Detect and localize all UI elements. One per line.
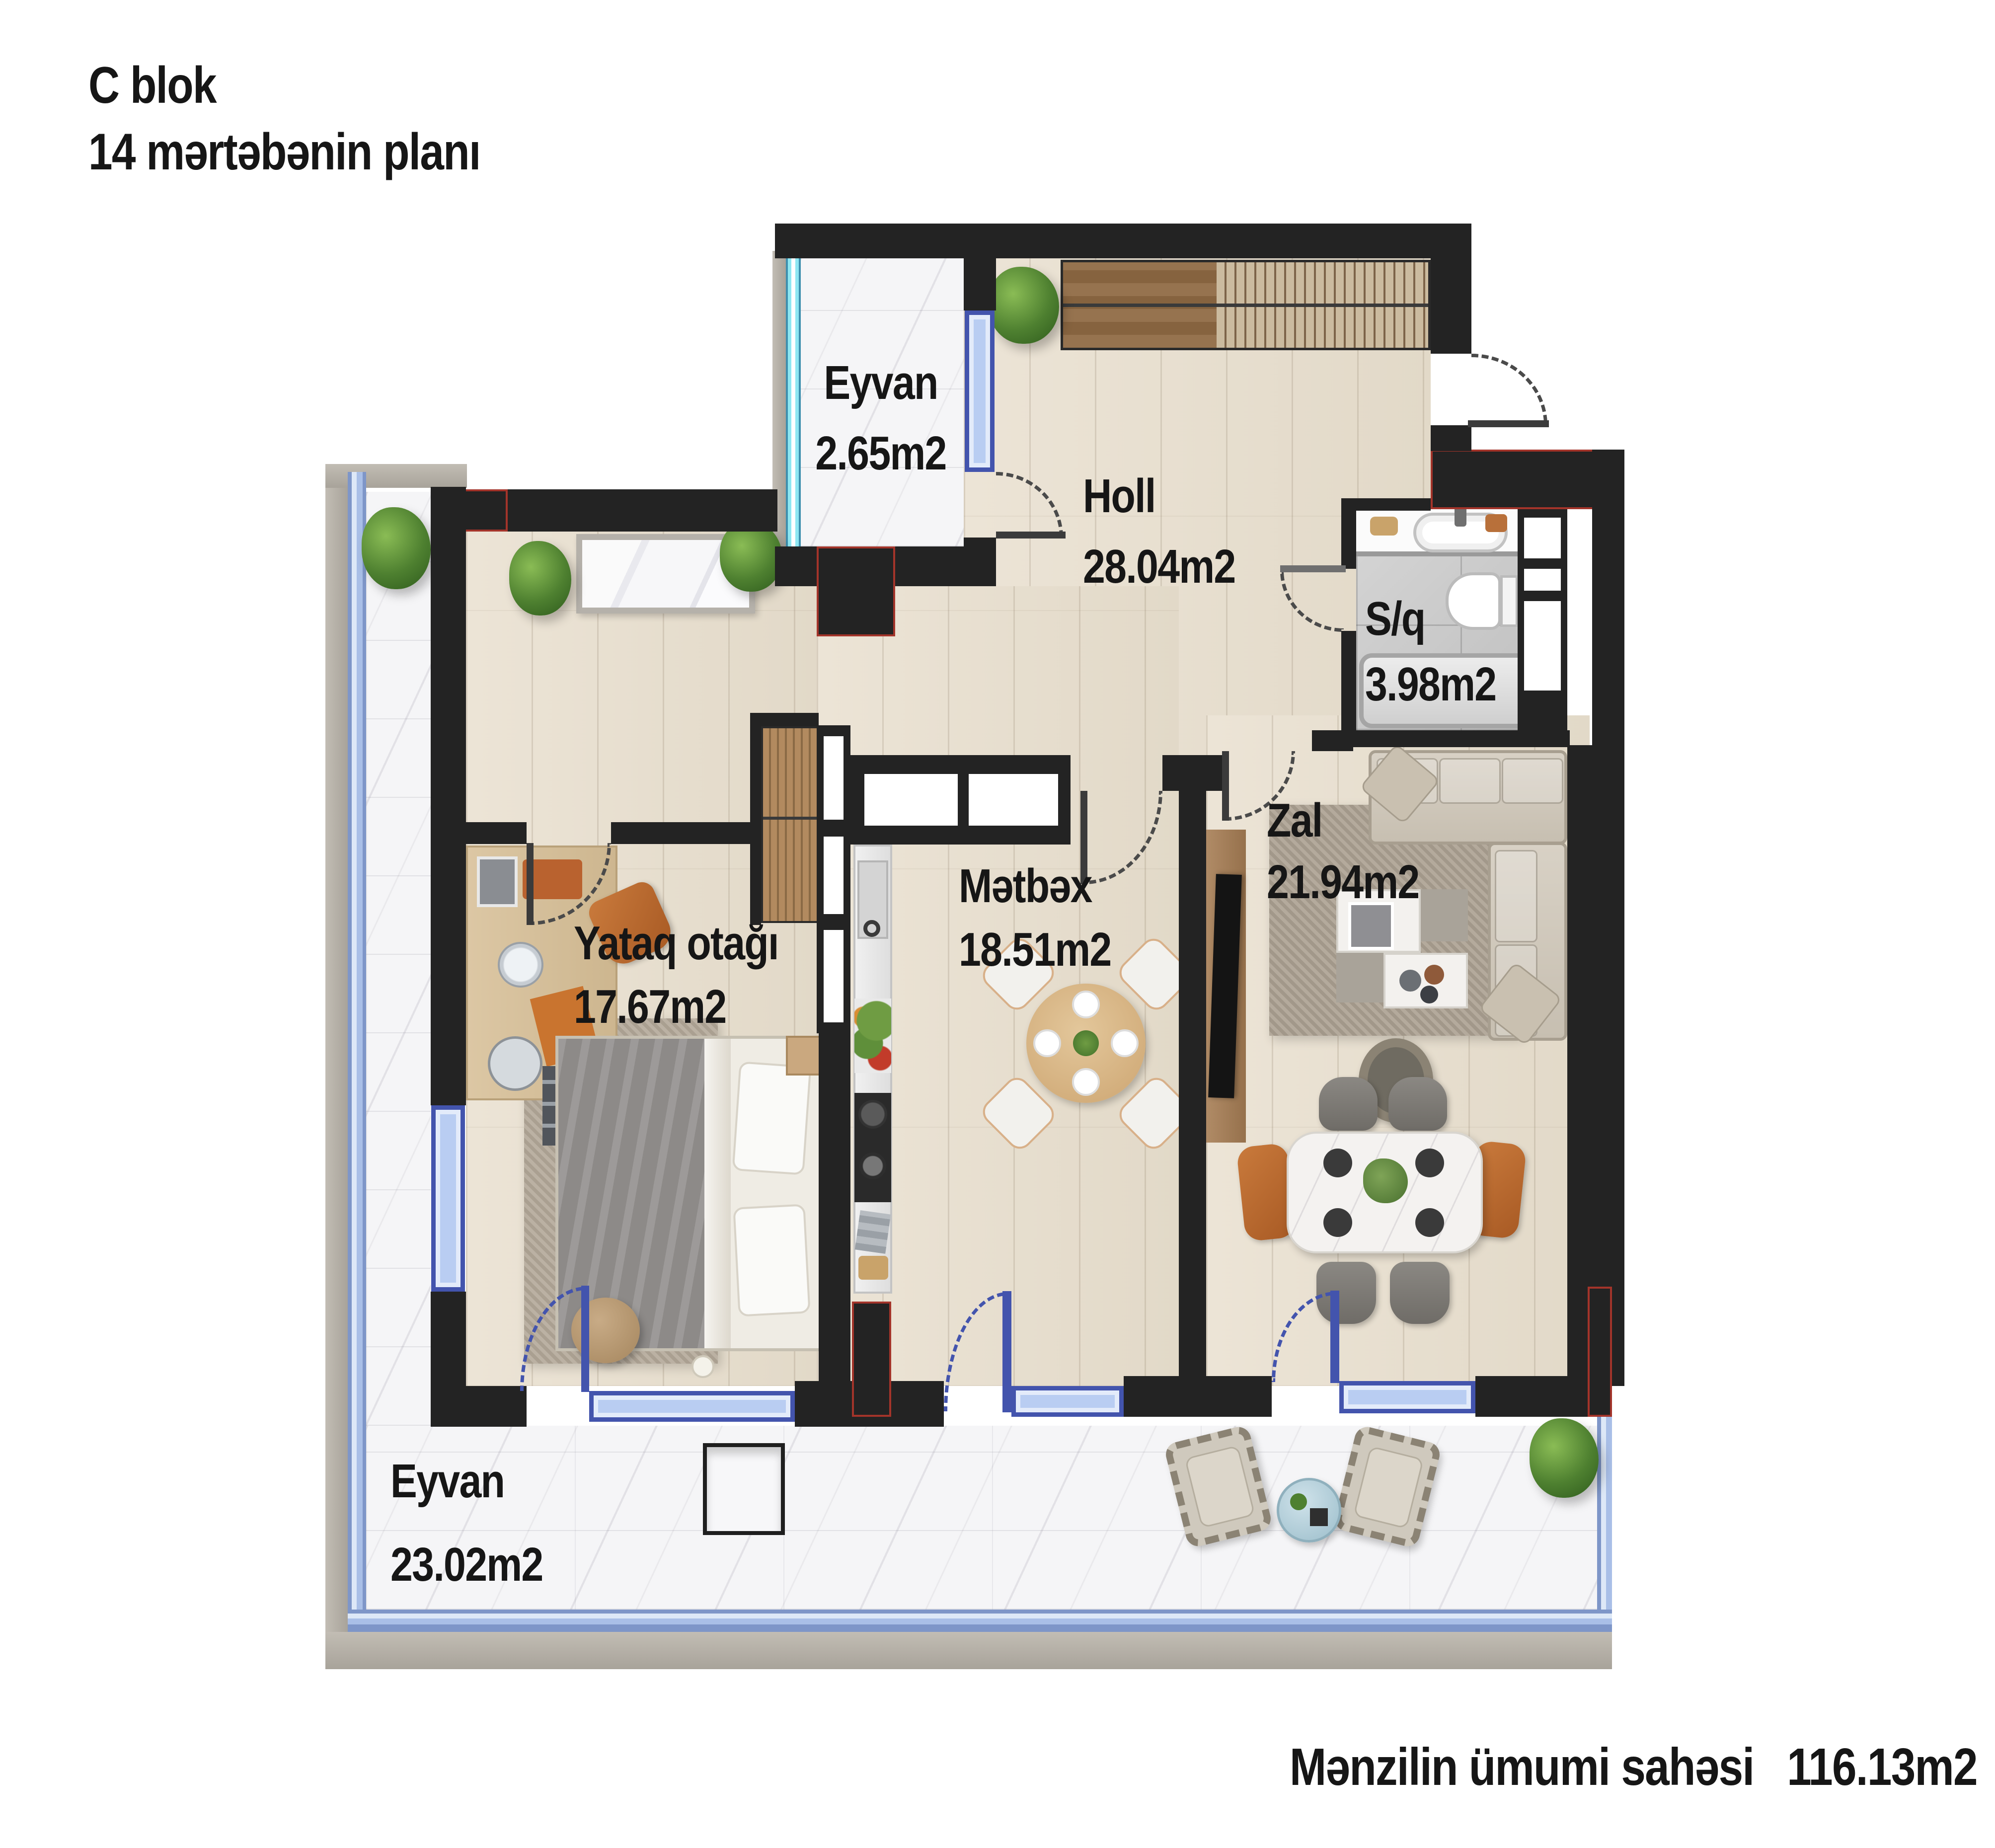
coffee-table-cup-1 xyxy=(1399,970,1421,992)
partition-pane-h1 xyxy=(864,774,958,826)
window-kitchen-balcony xyxy=(1011,1386,1124,1417)
building-edge-top-left xyxy=(325,464,467,488)
side-table-plant xyxy=(1290,1493,1307,1510)
partition-pane-v3 xyxy=(824,930,844,1022)
wall-left-upper xyxy=(431,487,466,1105)
bathroom-faucet xyxy=(1455,507,1466,527)
room-area: 18.51m2 xyxy=(959,918,1111,982)
entry-door-arc xyxy=(1471,354,1547,425)
balcony-side-table xyxy=(1277,1478,1341,1542)
room-label-metbex: Mətbəx 18.51m2 xyxy=(959,854,1111,982)
wall-bedroom-top-right xyxy=(611,822,750,844)
room-label-holl: Holl 28.04m2 xyxy=(1083,461,1235,602)
room-label-eyvan-bottom: Eyvan 23.02m2 xyxy=(390,1440,543,1607)
room-name: Eyvan xyxy=(812,348,949,418)
bedroom-balcony-door-panel xyxy=(581,1286,589,1392)
window-bedroom-balcony xyxy=(589,1391,795,1422)
room-label-sq: S/q 3.98m2 xyxy=(1365,586,1496,717)
wall-bathroom-bottom xyxy=(1353,730,1570,747)
kitchen-stove xyxy=(854,1093,891,1202)
plant-holl-top xyxy=(989,267,1059,344)
zal-dining-chair-top-2 xyxy=(1388,1077,1447,1131)
coffee-table-cup-2 xyxy=(1424,965,1444,985)
window-zal-balcony xyxy=(1339,1381,1475,1413)
bathroom-cosmetics xyxy=(1485,514,1507,532)
desk-lamp xyxy=(498,942,543,988)
wall-block-red-2 xyxy=(852,1302,891,1417)
room-name: Mətbəx xyxy=(959,854,1111,918)
wall-bottom-kitchen-right xyxy=(1124,1376,1272,1417)
wardrobe-rail-bar xyxy=(1063,304,1428,307)
wall-top xyxy=(775,224,1471,258)
wall-kitchen-zal-divider xyxy=(1179,755,1206,1386)
kitchen-towel xyxy=(855,1210,891,1254)
room-area: 3.98m2 xyxy=(1365,652,1496,717)
window-bedroom-left xyxy=(431,1105,465,1292)
wall-bedroom-top-left xyxy=(466,822,527,844)
bathroom-soap-dish xyxy=(1370,517,1398,536)
dining-plate-4 xyxy=(1415,1208,1444,1237)
stove-pan xyxy=(859,1153,886,1179)
mullion-pane-2 xyxy=(1524,569,1561,591)
wall-bedroom-kitchen-lower xyxy=(819,1033,850,1386)
bed-pillow-2 xyxy=(733,1204,810,1317)
wall-corner-red xyxy=(1588,1287,1612,1417)
wall-bathroom-left-upper xyxy=(1341,509,1356,569)
partition-pane-v1 xyxy=(824,736,844,820)
room-name: Holl xyxy=(1083,461,1235,532)
desk-photo-frame xyxy=(477,856,518,907)
bedroom-wardrobe-rails xyxy=(763,728,817,921)
sofa-cushion xyxy=(1439,758,1501,804)
wall-bottom-zal-right xyxy=(1475,1376,1592,1417)
total-area-value: 116.13m2 xyxy=(1787,1738,1977,1796)
plant-holl-right xyxy=(720,521,782,592)
window-balcony-holl xyxy=(965,310,995,472)
partition-pane-h2 xyxy=(969,774,1058,826)
kitchen-cutting-board xyxy=(858,1256,888,1280)
bedroom-nightstand xyxy=(786,1036,821,1076)
zal-dining-table xyxy=(1287,1132,1483,1253)
closet-nook-wall-left xyxy=(750,713,761,925)
balcony-top-window xyxy=(786,258,801,546)
kitchen-balcony-door-panel xyxy=(1002,1291,1011,1412)
room-area: 28.04m2 xyxy=(1083,532,1235,602)
sofa-cushion xyxy=(1502,758,1563,804)
plant-holl-left xyxy=(509,541,571,616)
building-edge-left xyxy=(325,464,348,1669)
dining-flowers xyxy=(1363,1158,1408,1203)
balcony-glass-rail-bottom xyxy=(348,1610,1612,1632)
bed-sheet-fold xyxy=(704,1039,731,1348)
room-label-yataq: Yataq otağı 17.67m2 xyxy=(574,912,778,1039)
zal-door-panel xyxy=(1222,751,1229,821)
wall-block-red-1 xyxy=(817,546,895,636)
plant-balcony-corner xyxy=(362,507,431,589)
wall-balcony-divider-upper xyxy=(964,258,996,310)
room-label-zal: Zal 21.94m2 xyxy=(1267,790,1419,913)
table-plate-e xyxy=(1111,1029,1139,1057)
side-table-tray xyxy=(1310,1508,1328,1526)
table-plate-n xyxy=(1072,991,1100,1018)
coffee-table-white-2 xyxy=(1383,953,1468,1008)
building-edge-bottom xyxy=(325,1632,1612,1669)
room-name: Yataq otağı xyxy=(574,912,778,975)
coffee-table-gray-1 xyxy=(1421,889,1468,941)
wall-entry-lower xyxy=(1431,425,1471,451)
bedroom-wardrobe-bar xyxy=(763,817,817,820)
table-plate-w xyxy=(1033,1029,1061,1057)
holl-wardrobe xyxy=(1061,260,1431,350)
wall-bathroom-left-lower xyxy=(1341,631,1356,731)
balcony-left-floor xyxy=(366,492,431,1426)
bed-pillow-1 xyxy=(732,1061,811,1175)
balcony-top-door-panel xyxy=(996,532,1066,539)
floor-plan-canvas: C blok 14 mərtəbənin planı Eyvan 2.65m2 … xyxy=(0,0,1995,1848)
room-area: 23.02m2 xyxy=(390,1523,543,1607)
wall-bottom-bedroom-left xyxy=(431,1386,527,1427)
room-area: 17.67m2 xyxy=(574,975,778,1039)
wall-balcony-divider-lower xyxy=(964,538,996,586)
wall-zal-top-stub xyxy=(1312,730,1353,751)
kitchen-table xyxy=(1026,984,1146,1103)
mullion-pane-3 xyxy=(1524,601,1561,691)
bedroom-door-panel xyxy=(527,843,534,925)
desk-mirror xyxy=(488,1036,542,1091)
dining-plate-1 xyxy=(1323,1149,1352,1177)
wall-outer-column-right xyxy=(1592,450,1624,745)
room-area: 2.65m2 xyxy=(812,418,949,489)
total-area-text: Mənzilin ümumi sahəsi 116.13m2 xyxy=(1290,1735,1957,1799)
entry-door-panel xyxy=(1468,420,1549,427)
bedroom-candle xyxy=(691,1355,714,1378)
sofa-cushion xyxy=(1495,850,1537,942)
wall-entry-upper xyxy=(1431,258,1471,354)
balcony-floor-hatch xyxy=(703,1443,785,1535)
toilet-tank xyxy=(1500,575,1518,627)
plan-title: C blok 14 mərtəbənin planı xyxy=(88,52,480,185)
plant-balcony-bottom-right xyxy=(1530,1418,1599,1498)
zal-balcony-door-panel xyxy=(1330,1291,1339,1383)
partition-pane-v2 xyxy=(824,837,844,914)
kitchen-vegetables xyxy=(854,999,891,1073)
zal-dining-chair-top-1 xyxy=(1319,1077,1378,1131)
total-area-label: Mənzilin ümumi sahəsi xyxy=(1290,1738,1754,1796)
room-name: Zal xyxy=(1267,790,1419,851)
dining-plate-2 xyxy=(1415,1149,1444,1177)
room-area: 21.94m2 xyxy=(1267,851,1419,913)
dining-plate-3 xyxy=(1323,1208,1352,1237)
mullion-pane-1 xyxy=(1524,518,1561,558)
title-block: C blok xyxy=(88,52,480,119)
kitchen-faucet xyxy=(863,920,880,937)
wall-bathroom-top-thin xyxy=(1341,498,1431,511)
wall-bathroom-top-block xyxy=(1431,450,1595,509)
room-name: S/q xyxy=(1365,586,1496,652)
armchair-cushion xyxy=(1353,1446,1424,1529)
bathroom-door-panel xyxy=(1280,565,1346,572)
armchair-cushion xyxy=(1184,1445,1255,1528)
stove-pot xyxy=(858,1100,887,1129)
table-centerpiece xyxy=(1073,1030,1099,1056)
room-name: Eyvan xyxy=(390,1440,543,1523)
room-label-eyvan-top: Eyvan 2.65m2 xyxy=(812,348,949,489)
title-floor: 14 mərtəbənin planı xyxy=(88,119,480,185)
bedroom-wardrobe xyxy=(761,726,819,923)
zal-dining-chair-bottom-2 xyxy=(1390,1262,1450,1324)
balcony-glass-rail-left xyxy=(348,472,366,1632)
table-plate-s xyxy=(1072,1068,1100,1096)
coffee-table-gray-2 xyxy=(1336,953,1383,1002)
coffee-table-cup-3 xyxy=(1420,986,1438,1003)
